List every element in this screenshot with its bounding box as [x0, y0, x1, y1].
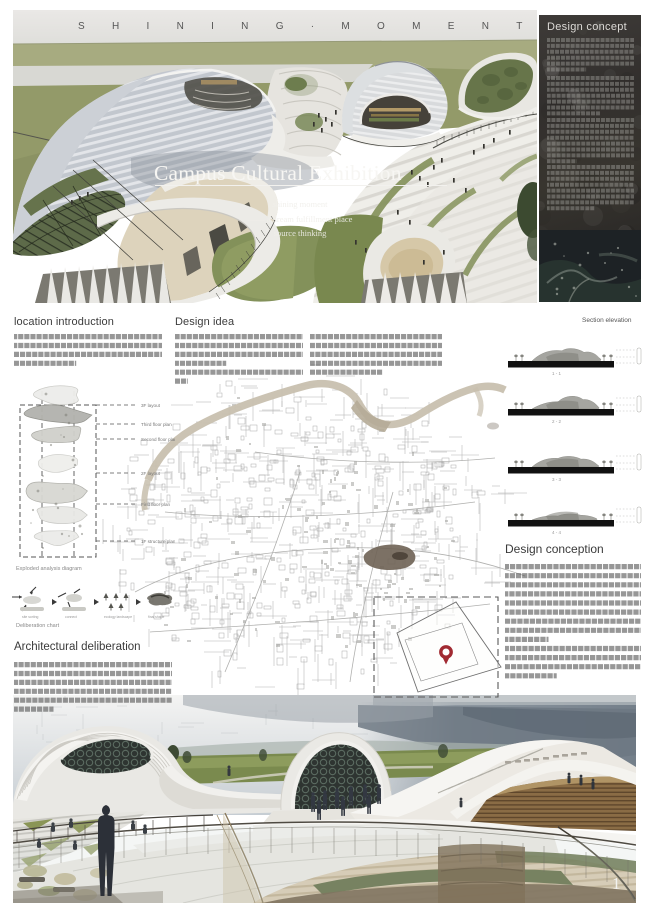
svg-text:2F layout: 2F layout [141, 471, 161, 476]
svg-text:site sorting: site sorting [22, 615, 39, 619]
svg-text:1F structure plan: 1F structure plan [141, 539, 175, 544]
svg-text:First floor plan: First floor plan [141, 502, 171, 507]
svg-text:1 - 1: 1 - 1 [552, 371, 562, 376]
svg-text:2 - 2: 2 - 2 [552, 419, 562, 424]
svg-text:Second floor plan: Second floor plan [141, 437, 175, 442]
svg-text:ecology landscape: ecology landscape [104, 615, 132, 619]
svg-text:3F layout: 3F layout [141, 403, 161, 408]
svg-text:3 - 3: 3 - 3 [552, 477, 562, 482]
svg-text:final shape: final shape [148, 615, 165, 619]
svg-text:Third floor plan: Third floor plan [141, 422, 172, 427]
svg-text:connect: connect [65, 615, 77, 619]
svg-text:4 - 4: 4 - 4 [552, 530, 562, 535]
